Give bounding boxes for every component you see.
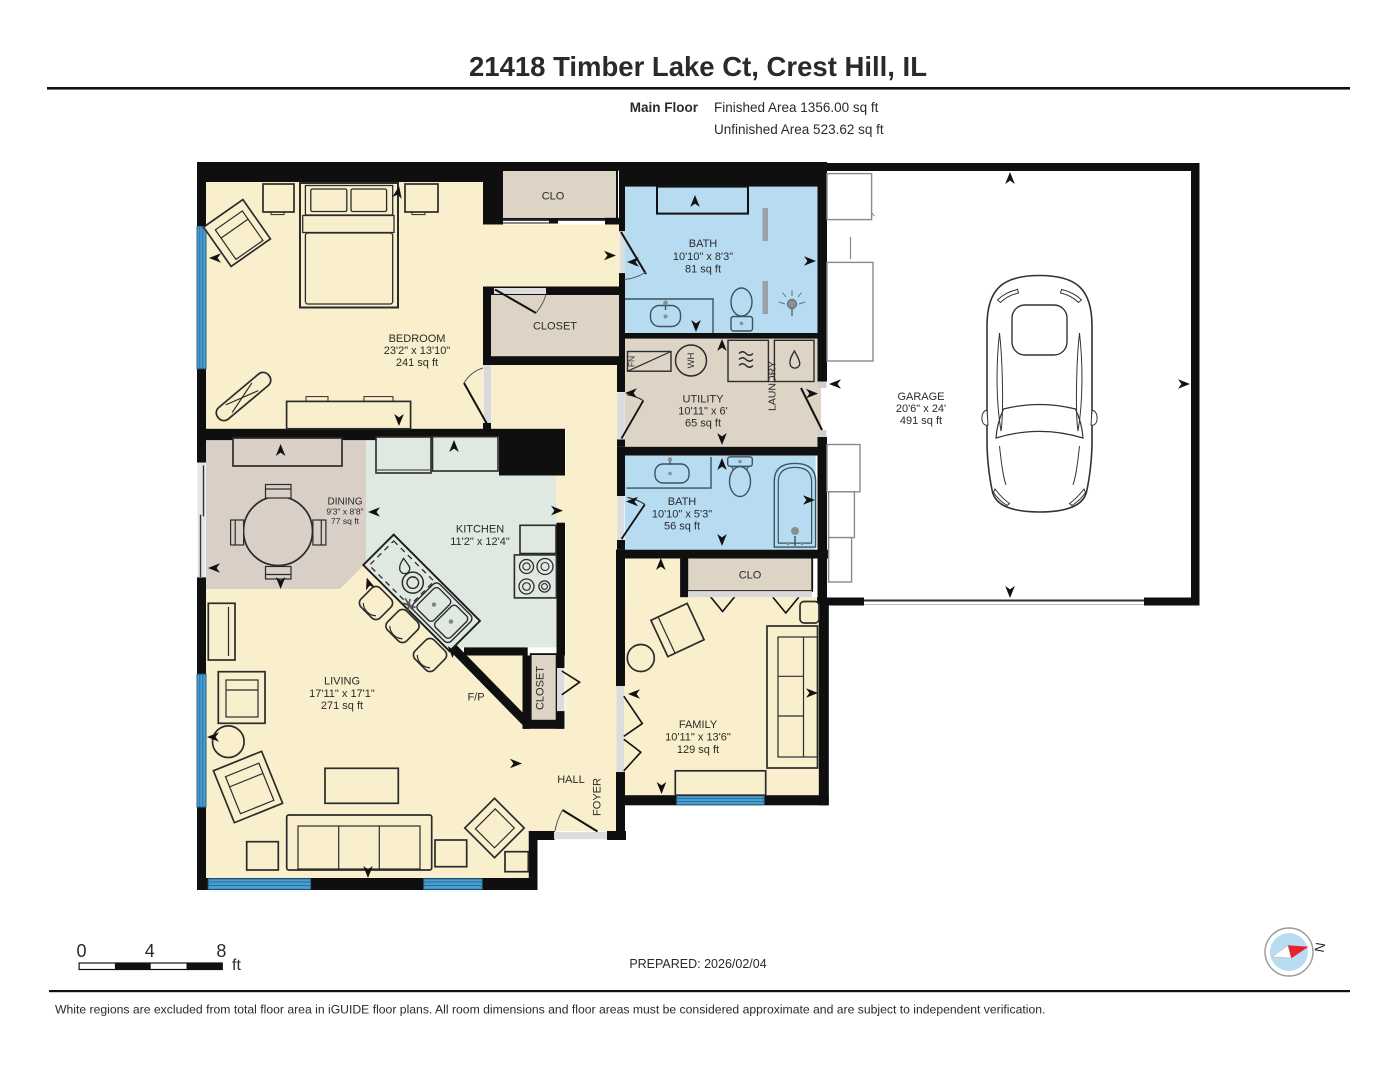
svg-text:4: 4 bbox=[145, 941, 155, 961]
svg-text:17'11" x 17'1": 17'11" x 17'1" bbox=[309, 688, 375, 700]
svg-text:491 sq ft: 491 sq ft bbox=[900, 415, 942, 427]
svg-text:FOYER: FOYER bbox=[592, 778, 604, 816]
svg-text:CLO: CLO bbox=[542, 191, 565, 203]
svg-text:UTILITY: UTILITY bbox=[683, 394, 725, 406]
svg-text:CLOSET: CLOSET bbox=[533, 321, 577, 333]
svg-text:LAUNDRY: LAUNDRY bbox=[767, 361, 779, 411]
svg-text:20'6" x 24': 20'6" x 24' bbox=[896, 403, 946, 415]
svg-text:WH: WH bbox=[686, 352, 697, 368]
svg-text:Main Floor: Main Floor bbox=[630, 100, 699, 115]
svg-text:GARAGE: GARAGE bbox=[897, 391, 944, 403]
svg-text:56 sq ft: 56 sq ft bbox=[664, 521, 700, 533]
svg-text:10'11" x 6': 10'11" x 6' bbox=[678, 406, 728, 418]
svg-text:129 sq ft: 129 sq ft bbox=[677, 744, 719, 756]
svg-text:BATH: BATH bbox=[668, 496, 697, 508]
svg-text:65 sq ft: 65 sq ft bbox=[685, 418, 721, 430]
svg-text:CLO: CLO bbox=[739, 570, 762, 582]
svg-text:PREPARED: 2026/02/04: PREPARED: 2026/02/04 bbox=[629, 957, 766, 971]
svg-text:77 sq ft: 77 sq ft bbox=[331, 516, 360, 526]
svg-text:LIVING: LIVING bbox=[324, 676, 360, 688]
svg-text:23'2" x 13'10": 23'2" x 13'10" bbox=[384, 345, 451, 357]
svg-text:CLOSET: CLOSET bbox=[535, 666, 547, 710]
svg-text:BEDROOM: BEDROOM bbox=[389, 333, 446, 345]
svg-text:81 sq ft: 81 sq ft bbox=[685, 264, 721, 276]
svg-text:241 sq ft: 241 sq ft bbox=[396, 357, 438, 369]
svg-text:BATH: BATH bbox=[689, 238, 718, 250]
svg-text:KITCHEN: KITCHEN bbox=[456, 524, 504, 536]
svg-text:11'2" x 12'4": 11'2" x 12'4" bbox=[450, 536, 510, 548]
svg-text:FAMILY: FAMILY bbox=[679, 719, 718, 731]
svg-text:10'10" x 5'3": 10'10" x 5'3" bbox=[652, 509, 712, 521]
svg-text:ft: ft bbox=[232, 957, 241, 974]
svg-text:F/P: F/P bbox=[467, 692, 484, 704]
svg-text:0: 0 bbox=[76, 941, 86, 961]
svg-text:Finished Area 1356.00 sq ft: Finished Area 1356.00 sq ft bbox=[714, 100, 879, 115]
svg-text:HALL: HALL bbox=[557, 774, 585, 786]
svg-text:21418 Timber Lake Ct, Crest Hi: 21418 Timber Lake Ct, Crest Hill, IL bbox=[469, 51, 927, 82]
svg-text:271 sq ft: 271 sq ft bbox=[321, 700, 363, 712]
svg-text:10'10" x 8'3": 10'10" x 8'3" bbox=[673, 251, 733, 263]
svg-text:Unfinished Area 523.62 sq ft: Unfinished Area 523.62 sq ft bbox=[714, 122, 884, 137]
svg-text:FN: FN bbox=[627, 356, 637, 367]
svg-text:10'11" x 13'6": 10'11" x 13'6" bbox=[665, 732, 731, 744]
svg-text:8: 8 bbox=[216, 941, 226, 961]
svg-text:White regions are excluded fro: White regions are excluded from total fl… bbox=[55, 1003, 1045, 1017]
svg-text:9'3" x 8'8": 9'3" x 8'8" bbox=[326, 507, 363, 517]
